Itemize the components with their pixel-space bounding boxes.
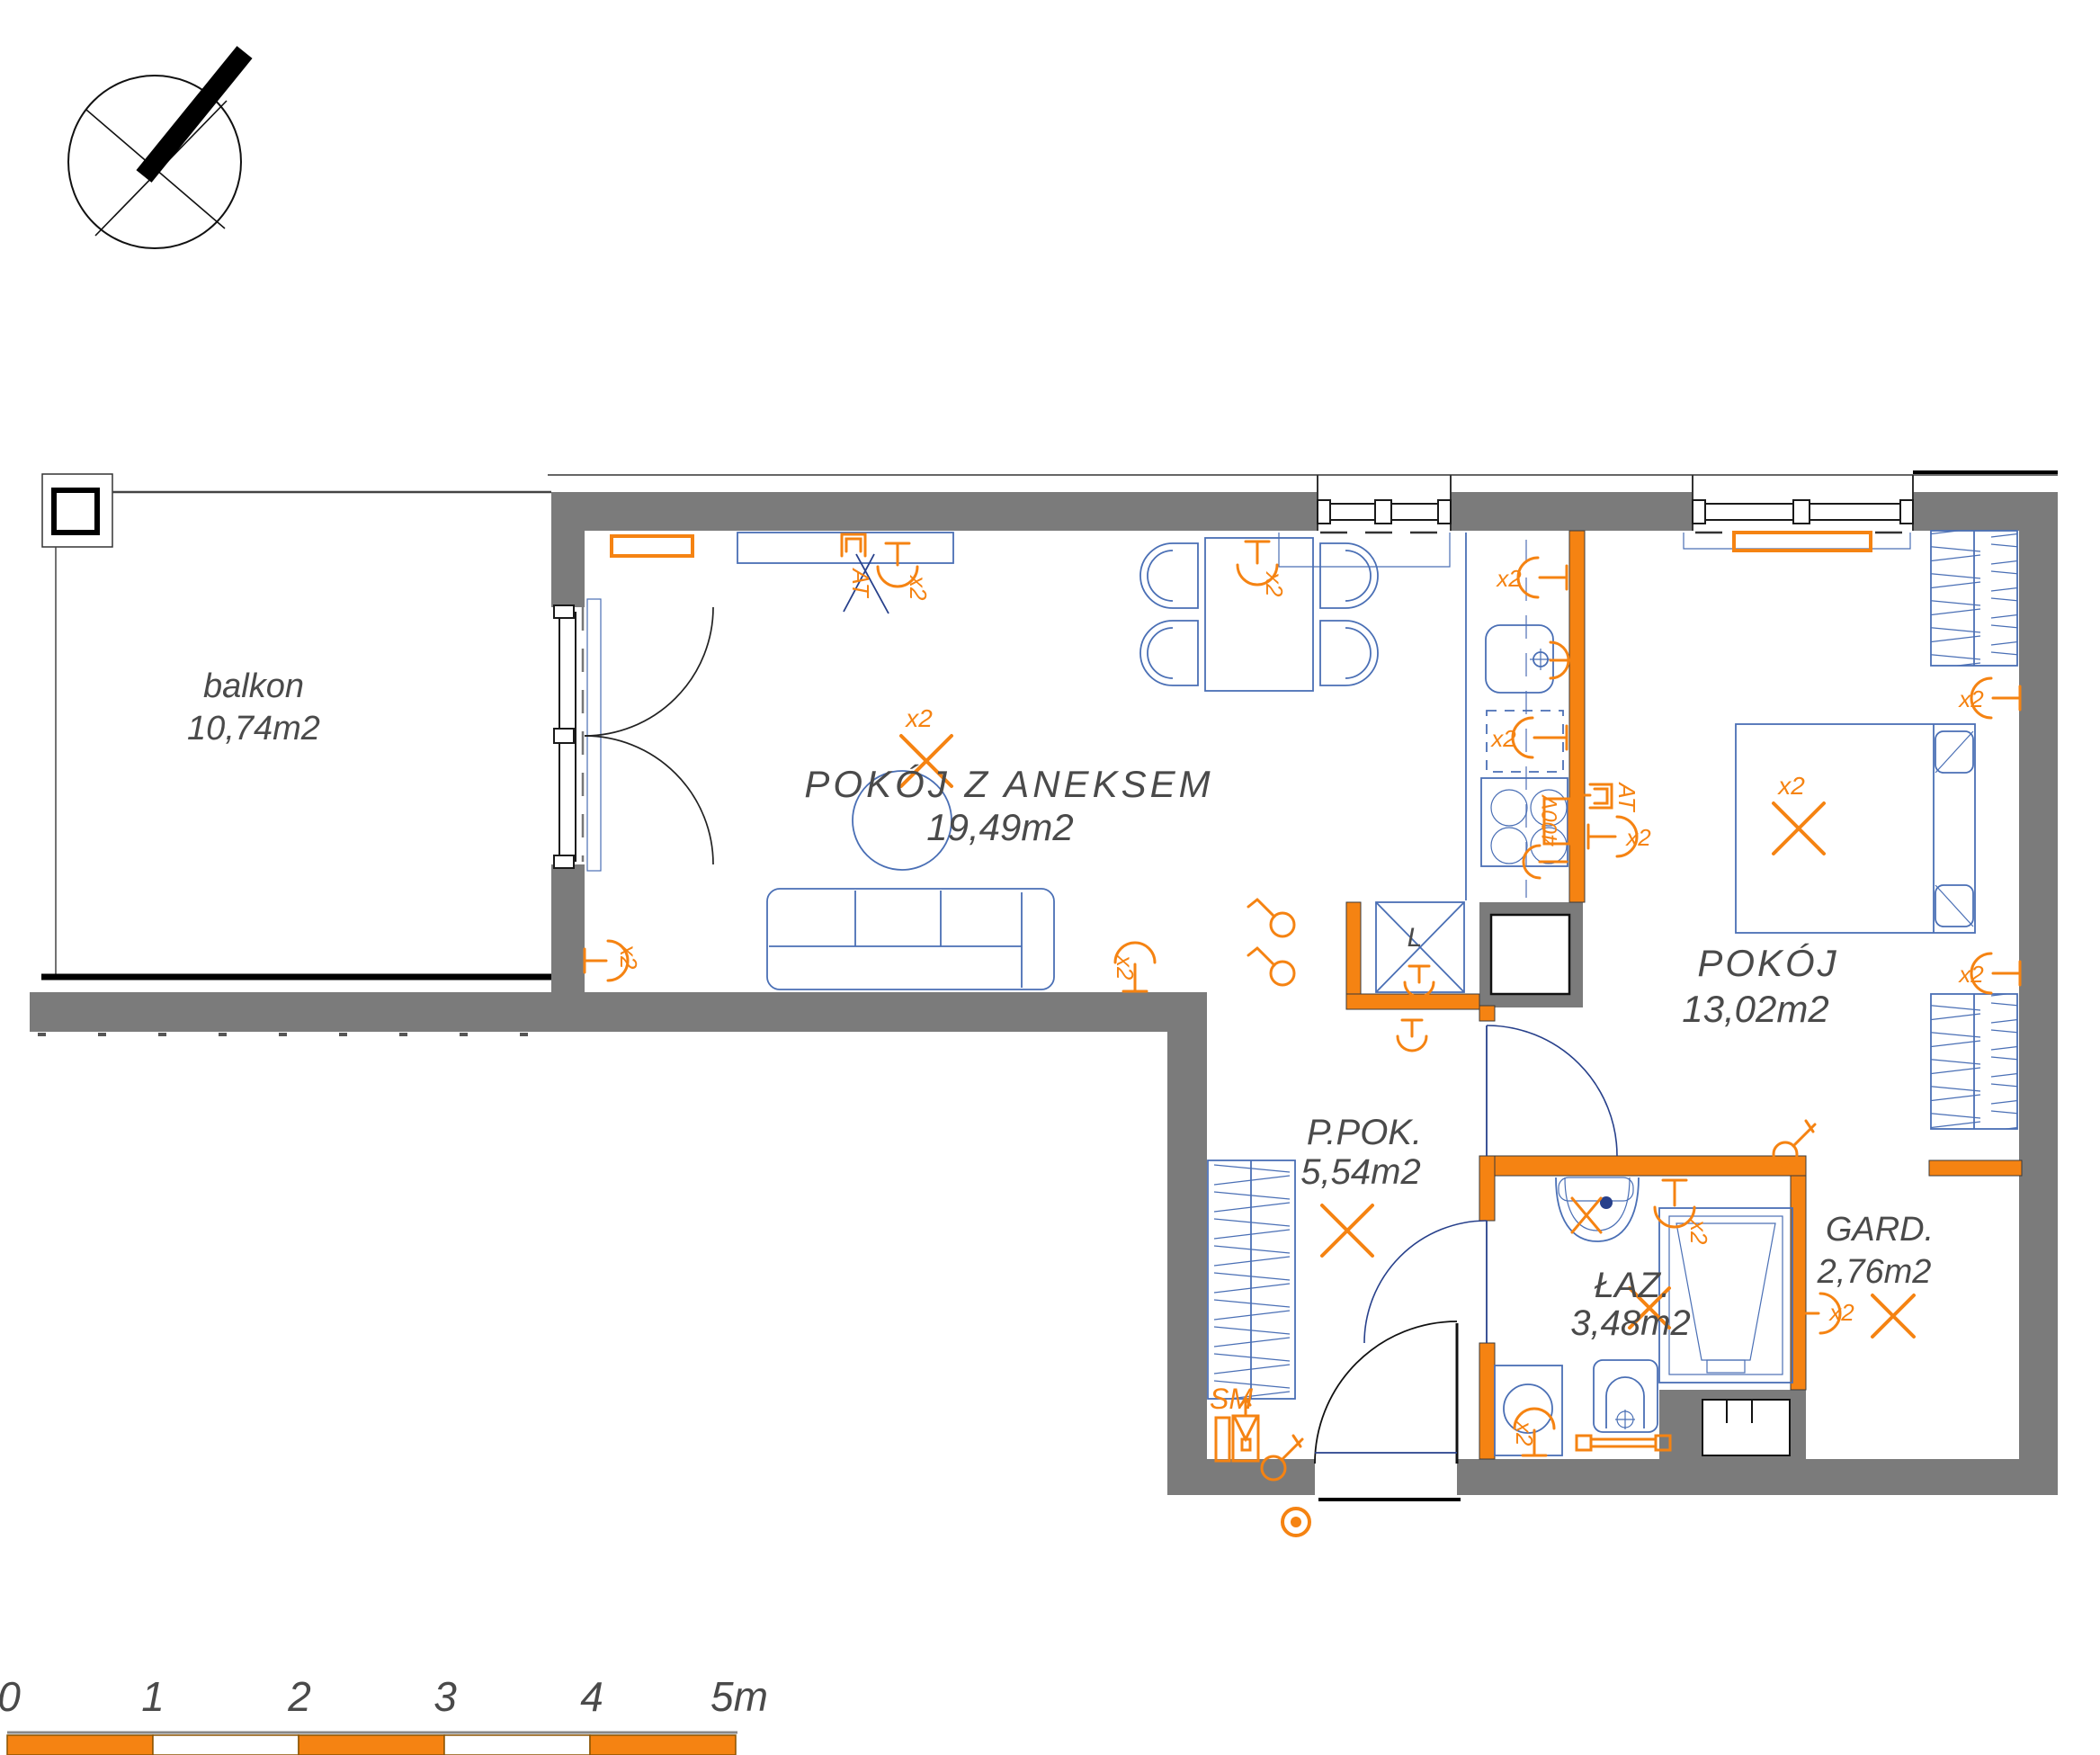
socket-label: x2: [1957, 961, 1984, 988]
socket-label: x2: [1511, 1419, 1538, 1446]
window-recess: [1684, 533, 1910, 549]
socket-label: x2: [1957, 685, 1984, 712]
socket-label: x2: [1495, 565, 1522, 592]
room-area-living: 19,49m2: [926, 806, 1073, 848]
ceiling-light-icon: [1872, 1295, 1914, 1337]
scale-tick-label: 4: [580, 1673, 603, 1720]
kitchen-faucet: [1530, 642, 1572, 678]
orange-wall-gard-stub: [1929, 1160, 2022, 1176]
svg-text:AT: AT: [1613, 781, 1640, 812]
orange-wall-kitchen: [1569, 531, 1585, 902]
scale-bar-segment: [299, 1735, 444, 1755]
socket-label: x2: [1827, 1299, 1854, 1326]
svg-text:x2: x2: [904, 704, 933, 732]
orange-wall-niche-v: [1346, 902, 1361, 1009]
socket-label: x2: [615, 943, 642, 970]
floor-plan-drawing: L 400V: [0, 0, 2100, 1755]
wall-bottom-living: [30, 992, 1207, 1032]
light-x-sink: [1572, 1198, 1601, 1232]
wall-right: [2019, 531, 2058, 1459]
scale-tick-label: 1: [141, 1673, 165, 1720]
toilet: [1594, 1360, 1658, 1432]
dining-table: [1205, 538, 1313, 691]
wall-south-left: [1167, 1459, 1315, 1495]
wall-left-lower: [551, 864, 585, 992]
door-swing-arc: [1315, 1321, 1457, 1464]
scale-bar-segment: [590, 1735, 736, 1755]
socket-label: x2: [1489, 725, 1516, 752]
wall-ppok-west: [1167, 1032, 1207, 1459]
dining-chair: [1140, 543, 1198, 608]
dining-chair: [1140, 621, 1198, 685]
sofa: [767, 889, 1054, 989]
room-area-bedroom: 13,02m2: [1682, 988, 1828, 1030]
orange-post-bath-lower: [1479, 1343, 1495, 1459]
pendant-lamp-icon: [1398, 1020, 1426, 1051]
shower: [1659, 1208, 1792, 1383]
door-bedroom: [1487, 1025, 1617, 1156]
bath-sink: [1556, 1177, 1639, 1241]
door-entrance: [1282, 1321, 1457, 1536]
stove-400v-label: 400V: [1538, 794, 1562, 846]
towel-radiator: [1577, 1436, 1670, 1450]
scale-tick-label: 3: [433, 1673, 457, 1720]
ceiling-light-icon: [1322, 1205, 1372, 1256]
north-arrow: [68, 52, 245, 248]
orange-post-shaft: [1479, 1006, 1495, 1021]
socket-label: x2: [1261, 570, 1288, 597]
radiator-living: [612, 536, 693, 556]
antenna-at-icon: AT: [842, 534, 874, 599]
wall-left-upper: [551, 492, 585, 607]
room-label-hall: P.POK.: [1307, 1113, 1422, 1152]
windows: [554, 475, 1913, 871]
bed: [1736, 724, 1975, 933]
switch-icon: [1248, 900, 1294, 936]
scale-bar-segment: [7, 1735, 153, 1755]
orange-wall-bath-north: [1495, 1156, 1806, 1176]
doorbell-icon: [1282, 1509, 1309, 1536]
wardrobe: [1208, 1160, 1295, 1399]
room-label-gard: GARD.: [1826, 1211, 1934, 1249]
svg-text:x2: x2: [1776, 772, 1805, 800]
scale-tick-label: 2: [287, 1673, 311, 1720]
laz-south-niche: [1702, 1400, 1790, 1455]
walls-gray: [30, 472, 2058, 1500]
door-swing-arc: [585, 607, 713, 736]
doors: [1282, 1025, 1617, 1536]
fridge-label: L: [1407, 923, 1423, 953]
room-area-balkon: 10,74m2: [187, 710, 320, 748]
socket-icon: [1513, 718, 1567, 757]
room-label-bedroom: POKÓJ: [1697, 942, 1838, 984]
door-swing-arc: [1487, 1025, 1617, 1156]
scale-tick-label: 5m: [710, 1673, 768, 1720]
wall-south-right: [1457, 1459, 2058, 1495]
north-arrow-needle: [144, 52, 245, 176]
room-label-bath: ŁAZ.: [1595, 1266, 1670, 1305]
room-area-bath: 3,48m2: [1570, 1303, 1690, 1343]
door-swing-arc: [585, 736, 713, 864]
radiator-bedroom: [1734, 533, 1871, 551]
balcony-column: [54, 490, 97, 533]
floor-plan-page: L 400V: [0, 0, 2100, 1755]
shaft-duct: [1491, 915, 1569, 994]
ceiling-light-icon: x2: [1774, 772, 1824, 854]
intercom-sm-panel: SM: [1210, 1383, 1258, 1461]
room-area-hall: 5,54m2: [1300, 1152, 1420, 1192]
window-bedroom: [1684, 475, 1913, 549]
cooker-feed-symbol: [1524, 846, 1567, 878]
wall-top-mid: [1451, 492, 1693, 531]
room-label-living: POKÓJ Z ANEKSEM: [804, 763, 1213, 805]
socket-label: x2: [905, 574, 932, 601]
room-label-balkon: balkon: [203, 667, 304, 705]
svg-text:AT: AT: [847, 567, 874, 598]
wardrobe: [1931, 994, 2017, 1129]
switch-icon: [1248, 948, 1294, 985]
scale-bar: 0 1 2 3 4 5m: [0, 1673, 768, 1755]
socket-icon: [1518, 558, 1567, 597]
socket-label: x2: [1624, 824, 1651, 851]
socket-label: x2: [1112, 954, 1139, 980]
socket-label: x2: [1685, 1218, 1712, 1245]
scale-bar-segment: [444, 1735, 590, 1755]
dining-chair: [1320, 621, 1378, 685]
wall-top-right: [1913, 492, 2058, 531]
balcony: [38, 474, 558, 1034]
balcony-door: [554, 599, 713, 871]
orange-post-bath-upper: [1479, 1156, 1495, 1221]
wall-top-left: [551, 492, 1318, 531]
wardrobe: [1931, 531, 2017, 666]
scale-bar-segment: [153, 1735, 299, 1755]
scale-tick-label: 0: [0, 1673, 21, 1720]
antenna-at-icon: AT: [1585, 781, 1640, 812]
room-area-gard: 2,76m2: [1817, 1253, 1932, 1291]
dining-chair: [1320, 543, 1378, 608]
